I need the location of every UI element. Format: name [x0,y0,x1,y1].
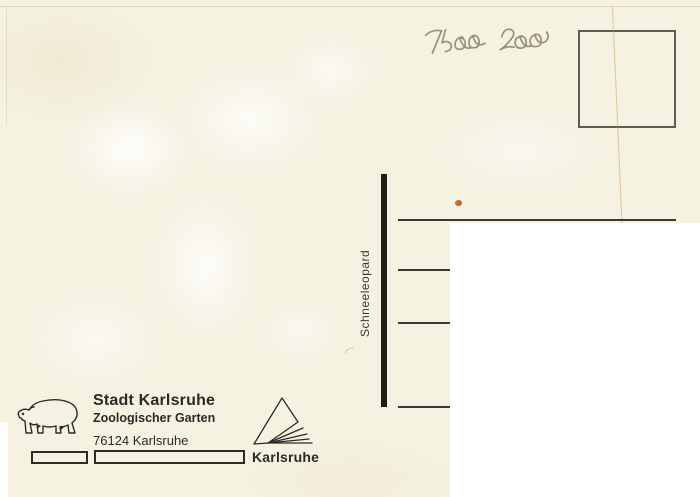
karlsruhe-logo-label: Karlsruhe [252,449,319,465]
address-line [398,406,452,408]
privacy-cover [450,223,700,497]
sender-box-large [94,450,245,464]
divider-label: Schneeleopard [356,243,374,343]
card-top-edge [0,6,700,7]
address-line [398,219,676,221]
stain-dot [455,200,462,206]
address-line [398,269,452,271]
postcard-back: 7500 Zoo Schneeleopard [0,0,700,497]
address-line [398,322,452,324]
divider-bar [381,174,387,407]
sender-box-small [31,451,88,464]
handwriting-strokes [417,13,569,70]
scan-edge-sliver [0,422,8,497]
polar-bear-icon [15,395,83,443]
scuff-mark [342,345,360,362]
karlsruhe-fan-icon [246,392,316,448]
stamp-box [578,30,676,128]
card-left-edge [6,6,7,126]
handwritten-note: 7500 Zoo [417,13,569,70]
